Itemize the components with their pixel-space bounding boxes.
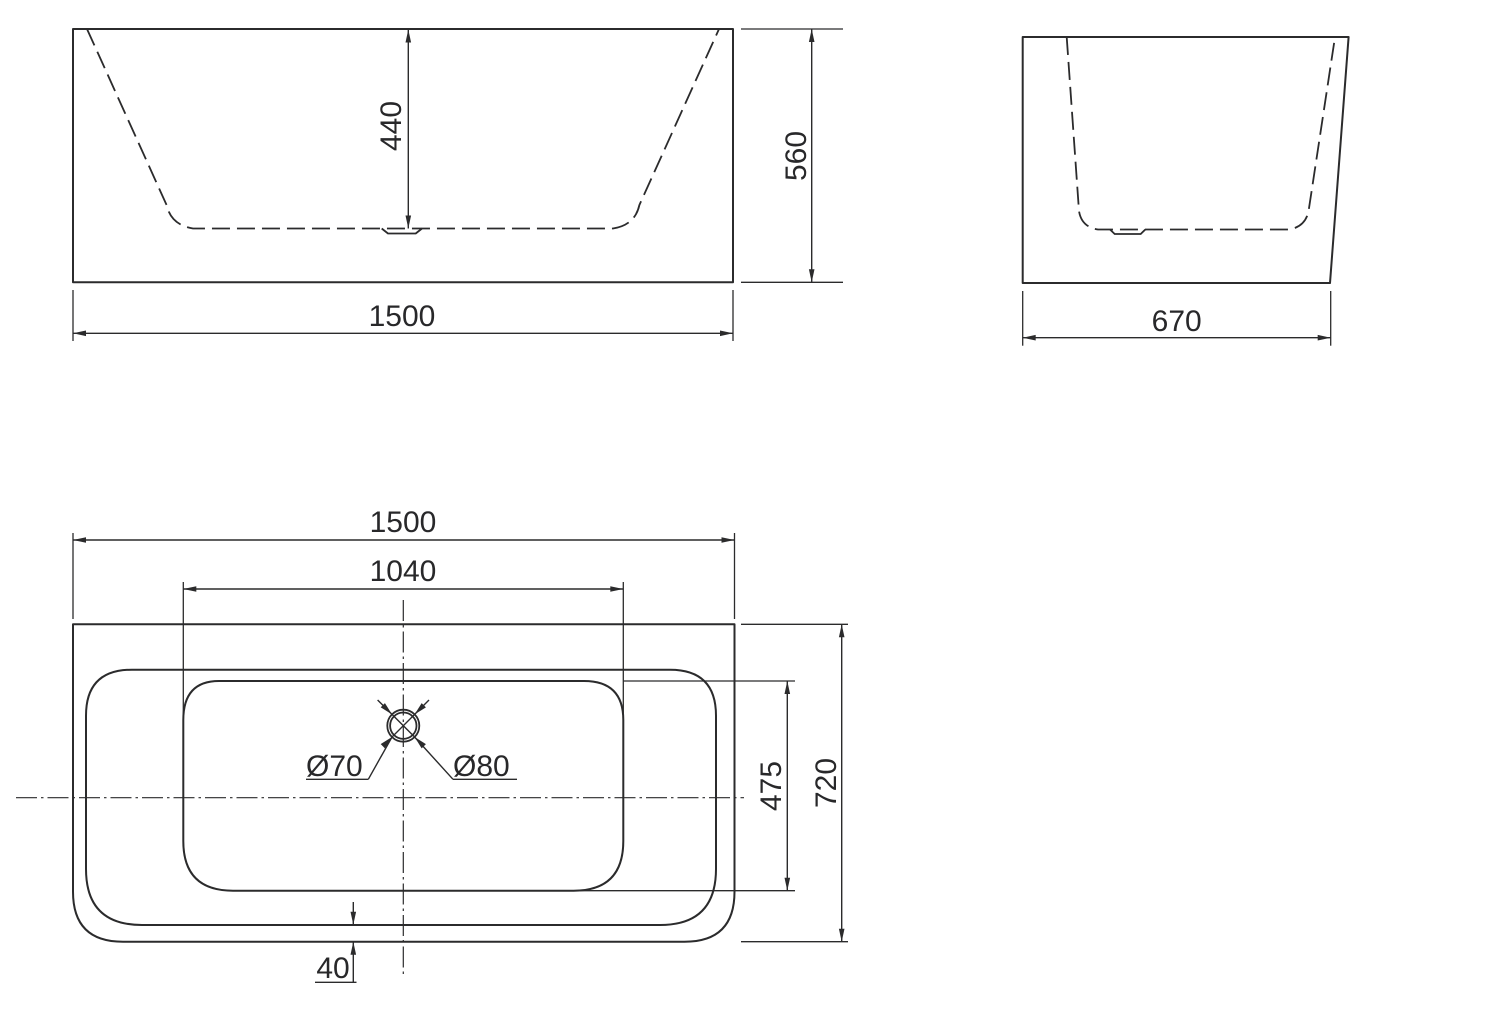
- dim-475-label: 475: [755, 761, 788, 811]
- side-view: 670: [1023, 37, 1349, 346]
- dim-1040-label: 1040: [370, 555, 437, 588]
- dim-475: 475: [580, 681, 795, 891]
- dim-1500-plan-label: 1500: [370, 506, 437, 539]
- dim-670: 670: [1023, 291, 1331, 346]
- drain-outer-diameter-label: Ø80: [453, 750, 510, 783]
- bathtub-technical-drawing: 440 560 1500 670: [0, 0, 1510, 1028]
- dim-440: 440: [375, 30, 408, 229]
- drawing-canvas: 440 560 1500 670: [0, 0, 1510, 1028]
- dim-40: 40: [315, 902, 357, 985]
- dim-440-label: 440: [375, 101, 408, 151]
- dim-40-label: 40: [316, 952, 349, 985]
- side-inner-profile-hidden-line: [1067, 37, 1335, 230]
- front-view: 440 560 1500: [73, 29, 843, 341]
- dim-560: 560: [741, 29, 843, 282]
- plan-view: Ø70 Ø80 1500 1040 475 720: [16, 506, 848, 985]
- dim-1500-front-label: 1500: [369, 300, 436, 333]
- drain-symbol: Ø70 Ø80: [306, 700, 517, 783]
- dim-560-label: 560: [780, 131, 813, 181]
- dim-1500-front: 1500: [73, 290, 733, 341]
- dim-670-label: 670: [1152, 305, 1202, 338]
- side-outer-outline: [1023, 37, 1349, 283]
- drain-inner-diameter-label: Ø70: [306, 750, 363, 783]
- dim-720-label: 720: [810, 758, 843, 808]
- front-outer-outline: [73, 29, 733, 282]
- drain-leader-70: [368, 700, 429, 779]
